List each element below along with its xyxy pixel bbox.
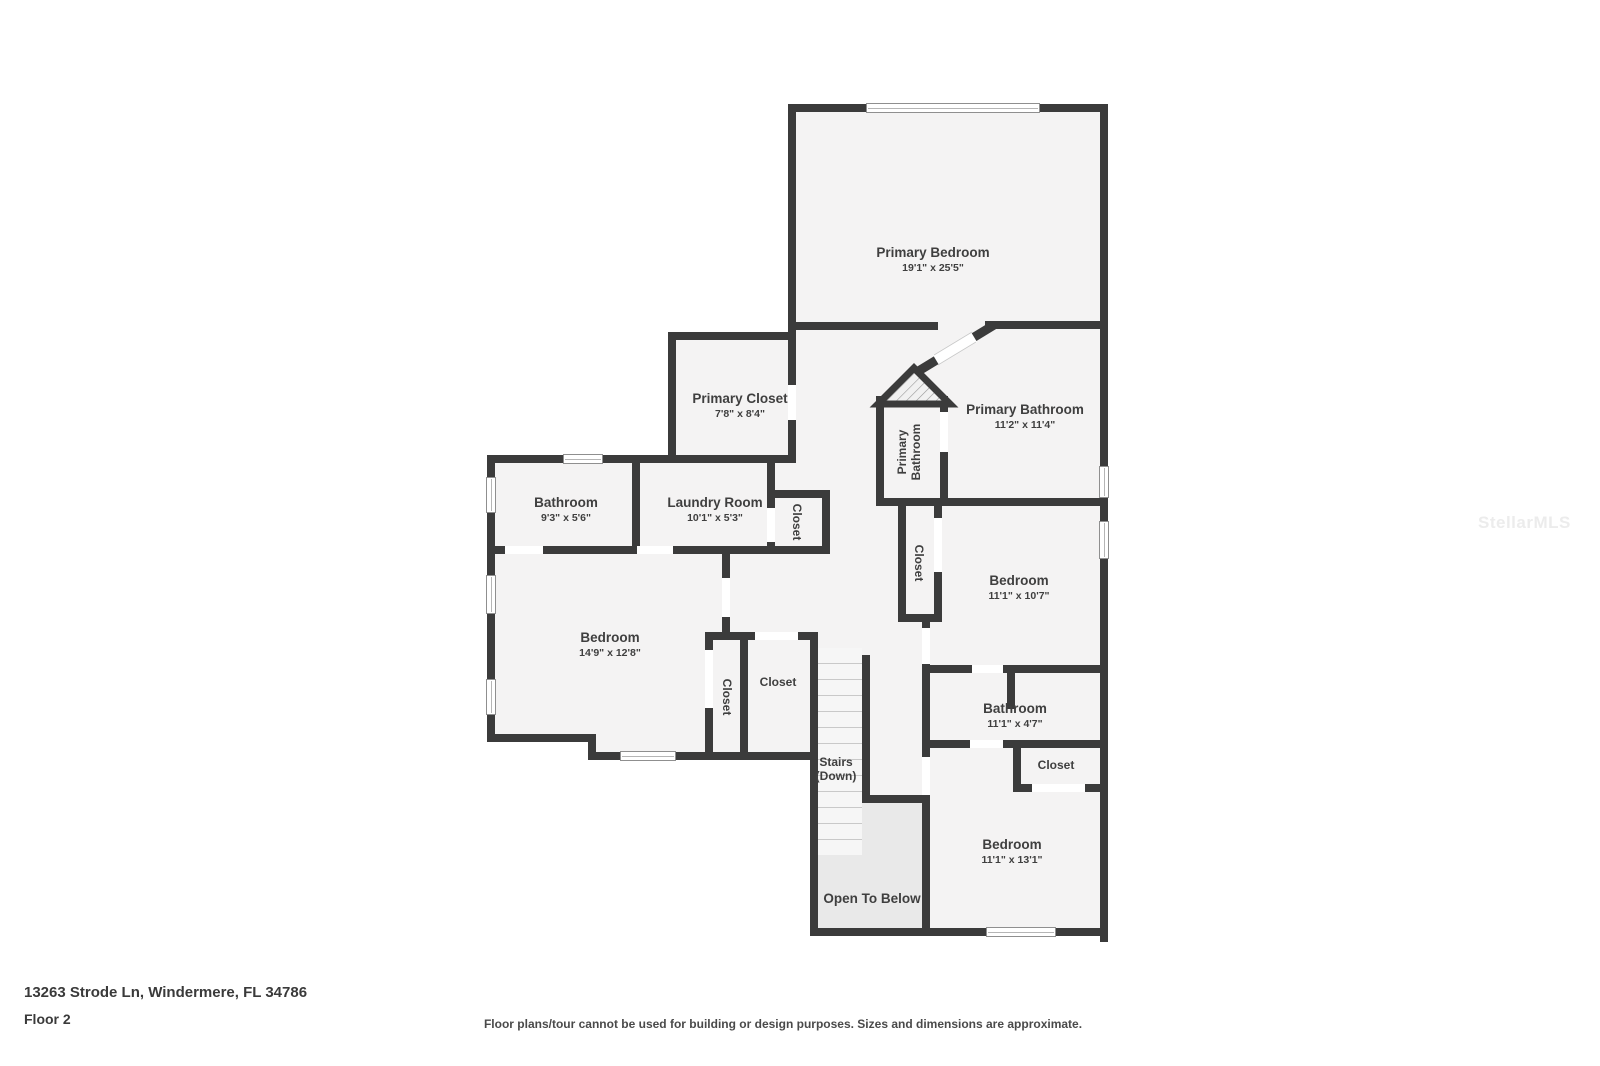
door-opening bbox=[1032, 784, 1085, 792]
room-name: Closet bbox=[790, 504, 804, 541]
room-label-primary-bathroom: Primary Bathroom 11'2" x 11'4" bbox=[966, 402, 1084, 432]
room-dims: 9'3" x 5'6" bbox=[534, 511, 598, 525]
stellar-mls-watermark: StellarMLS bbox=[1478, 513, 1571, 533]
window bbox=[1099, 521, 1109, 559]
wall bbox=[740, 640, 748, 752]
stairs-treads bbox=[818, 648, 862, 855]
room-name: Primary Bedroom bbox=[876, 245, 989, 261]
hallway-floor bbox=[818, 632, 862, 648]
wall bbox=[788, 322, 938, 330]
wall bbox=[922, 665, 1108, 673]
wall bbox=[898, 614, 942, 622]
wall bbox=[810, 928, 1108, 936]
room-label-bathroom-right: Bathroom 11'1" x 4'7" bbox=[983, 701, 1047, 731]
wall bbox=[668, 332, 676, 463]
room-name: Primary Bathroom bbox=[966, 402, 1084, 418]
window bbox=[486, 679, 496, 715]
wall bbox=[862, 795, 930, 803]
room-name: (Down) bbox=[816, 769, 857, 783]
room-dims: 10'1" x 5'3" bbox=[667, 511, 762, 525]
room-name: Bathroom bbox=[909, 424, 923, 481]
room-dims: 11'1" x 10'7" bbox=[988, 589, 1049, 603]
wall bbox=[810, 632, 818, 936]
room-dims: 7'8" x 8'4" bbox=[692, 407, 787, 421]
hallway-floor bbox=[796, 330, 876, 503]
room-name: Closet bbox=[720, 679, 734, 716]
wall bbox=[876, 396, 884, 503]
room-label-laundry-room: Laundry Room 10'1" x 5'3" bbox=[667, 495, 762, 525]
room-label-closet: Closet bbox=[720, 679, 734, 716]
wall bbox=[922, 740, 1108, 748]
primary-bedroom-floor bbox=[796, 112, 1100, 330]
wall bbox=[487, 734, 596, 742]
wall bbox=[876, 498, 1108, 506]
window bbox=[986, 927, 1056, 937]
wall bbox=[632, 463, 640, 554]
window bbox=[620, 751, 676, 761]
room-dims: 11'2" x 11'4" bbox=[966, 418, 1084, 432]
window bbox=[486, 477, 496, 513]
room-name: Stairs bbox=[816, 755, 857, 769]
door-opening bbox=[922, 757, 930, 795]
room-label-bedroom-right: Bedroom 11'1" x 10'7" bbox=[988, 573, 1049, 603]
floor-label: Floor 2 bbox=[24, 1011, 71, 1027]
room-label-closet: Closet bbox=[790, 504, 804, 541]
wall bbox=[898, 506, 906, 622]
room-name: Laundry Room bbox=[667, 495, 762, 511]
room-label-primary-bathroom-wc: Primary Bathroom bbox=[895, 424, 923, 481]
room-dims: 11'1" x 13'1" bbox=[981, 853, 1042, 867]
room-name: Bedroom bbox=[988, 573, 1049, 589]
room-name: Primary bbox=[895, 424, 909, 481]
room-label-bedroom-left: Bedroom 14'9" x 12'8" bbox=[579, 630, 641, 660]
room-dims: 11'1" x 4'7" bbox=[983, 717, 1047, 731]
door-opening bbox=[755, 632, 798, 640]
door-opening bbox=[972, 665, 1003, 673]
wall bbox=[822, 490, 830, 554]
door-opening bbox=[767, 508, 775, 542]
room-name: Closet bbox=[760, 675, 797, 689]
open-to-below-label: Open To Below bbox=[823, 891, 920, 907]
hallway-floor bbox=[862, 632, 922, 803]
room-label-primary-closet: Primary Closet 7'8" x 8'4" bbox=[692, 391, 787, 421]
window bbox=[866, 103, 1040, 113]
room-label-closet: Closet bbox=[1038, 758, 1075, 772]
room-name: Closet bbox=[912, 545, 926, 582]
door-opening bbox=[970, 740, 1003, 748]
room-label-closet: Closet bbox=[912, 545, 926, 582]
floor-plan-page: Primary Bedroom 19'1" x 25'5" Primary Cl… bbox=[0, 0, 1600, 1066]
room-label-primary-bedroom: Primary Bedroom 19'1" x 25'5" bbox=[876, 245, 989, 275]
wall bbox=[487, 455, 796, 463]
window bbox=[486, 575, 496, 614]
room-label-bathroom: Bathroom 9'3" x 5'6" bbox=[534, 495, 598, 525]
room-name: Bedroom bbox=[579, 630, 641, 646]
window bbox=[563, 454, 603, 464]
wall bbox=[668, 332, 796, 340]
door-opening bbox=[940, 412, 948, 452]
room-name: Open To Below bbox=[823, 891, 920, 907]
door-opening bbox=[637, 546, 673, 554]
room-dims: 19'1" x 25'5" bbox=[876, 261, 989, 275]
room-label-closet: Closet bbox=[760, 675, 797, 689]
door-opening bbox=[934, 518, 942, 572]
floor-plan: Primary Bedroom 19'1" x 25'5" Primary Cl… bbox=[0, 0, 1600, 1066]
wall bbox=[862, 655, 870, 803]
room-name: Bedroom bbox=[981, 837, 1042, 853]
window bbox=[1099, 466, 1109, 498]
wall bbox=[767, 490, 830, 498]
room-name: Bathroom bbox=[983, 701, 1047, 717]
door-opening bbox=[705, 650, 713, 708]
disclaimer-text: Floor plans/tour cannot be used for buil… bbox=[484, 1017, 1082, 1031]
wall bbox=[985, 321, 1100, 329]
room-name: Bathroom bbox=[534, 495, 598, 511]
room-name: Primary Closet bbox=[692, 391, 787, 407]
door-opening bbox=[505, 546, 543, 554]
door-opening bbox=[722, 578, 730, 617]
stairs-label: Stairs (Down) bbox=[816, 755, 857, 783]
room-dims: 14'9" x 12'8" bbox=[579, 646, 641, 660]
door-opening bbox=[788, 385, 796, 420]
property-address: 13263 Strode Ln, Windermere, FL 34786 bbox=[24, 984, 307, 1001]
room-label-bedroom-bottom: Bedroom 11'1" x 13'1" bbox=[981, 837, 1042, 867]
door-opening bbox=[922, 628, 930, 664]
room-name: Closet bbox=[1038, 758, 1075, 772]
